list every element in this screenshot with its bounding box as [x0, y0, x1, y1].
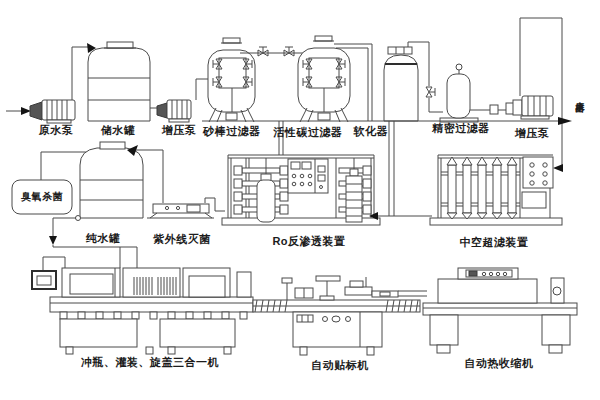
label-heat-shrink-machine: 自动热收缩机 [439, 357, 559, 369]
monitor [32, 271, 56, 289]
label-booster-pump-2: 增压泵 [502, 127, 562, 139]
booster-pump-1 [157, 79, 208, 122]
labeler-top-fixtures [282, 276, 398, 300]
label-labeling-machine: 自动贴标机 [290, 359, 390, 371]
pipe-pump2-to-uf [520, 18, 563, 172]
pipe-tank-to-filler [43, 218, 137, 271]
labeling-machine [253, 276, 420, 355]
deck-supports [60, 312, 247, 319]
uf-control-panel [522, 157, 553, 208]
precision-filter [440, 64, 506, 122]
activated-carbon-filter [298, 36, 350, 122]
uv-sterilizer [147, 204, 214, 218]
label-precision-filter: 精密过滤器 [421, 122, 501, 134]
label-waste-water-out: 废水排出 [574, 94, 586, 150]
ro-unit [222, 155, 380, 225]
label-three-in-one-machine: 冲瓶、灌装、旋盖三合一机 [70, 356, 230, 368]
label-raw-water-pump: 原水泵 [26, 124, 86, 136]
ozone-box [12, 152, 88, 214]
pipe-ro-uv-tank [136, 150, 225, 211]
booster-pump-2 [506, 96, 553, 119]
storage-tank [88, 42, 158, 121]
label-uv-sterilization: 紫外线灭菌 [142, 233, 222, 245]
label-pure-water-tank: 纯水罐 [73, 232, 133, 244]
pure-water-tank [76, 142, 144, 221]
label-storage-tank: 储水罐 [88, 124, 148, 136]
label-sand-rod-filter: 砂棒过滤器 [197, 125, 267, 137]
label-carbon-filter: 活性碳过滤器 [268, 126, 348, 138]
sand-rod-filter [208, 38, 255, 122]
softener [384, 47, 418, 121]
label-uf-unit: 中空超滤装置 [444, 236, 544, 248]
process-flow-diagram: 原水泵 储水罐 增压泵 砂棒过滤器 活性碳过滤器 软化器 精密过滤器 增压泵 废… [0, 0, 600, 400]
uf-tube-bank [447, 157, 517, 219]
uf-unit [430, 155, 562, 225]
three-in-one-machine [32, 268, 253, 354]
label-ozone-sterilization: 臭氧杀菌 [14, 191, 70, 203]
diagram-linework [0, 0, 600, 400]
raw-water-pump [30, 100, 75, 123]
inlet-arrow [6, 107, 31, 115]
label-ro-unit: Ro反渗透装置 [259, 235, 359, 247]
heat-shrink-machine [398, 268, 577, 353]
label-softener: 软化器 [341, 125, 401, 137]
ro-control-panel [288, 159, 328, 193]
